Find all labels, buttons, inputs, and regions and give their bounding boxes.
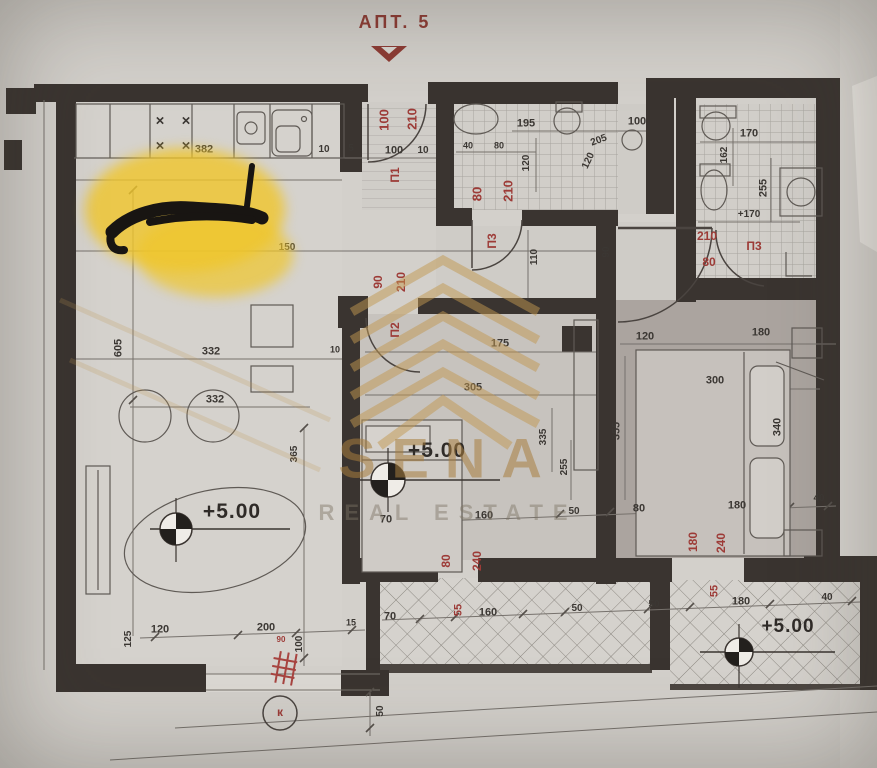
floorplan-canvas: 38210510010100210П1802101954080120120205… (0, 0, 877, 768)
plan-drawing (0, 0, 877, 768)
plan-title: АПТ. 5 (320, 12, 470, 33)
triangle-marker-inner (381, 47, 397, 54)
bed-center (362, 420, 462, 572)
plan-title-text: АПТ. 5 (359, 12, 432, 32)
